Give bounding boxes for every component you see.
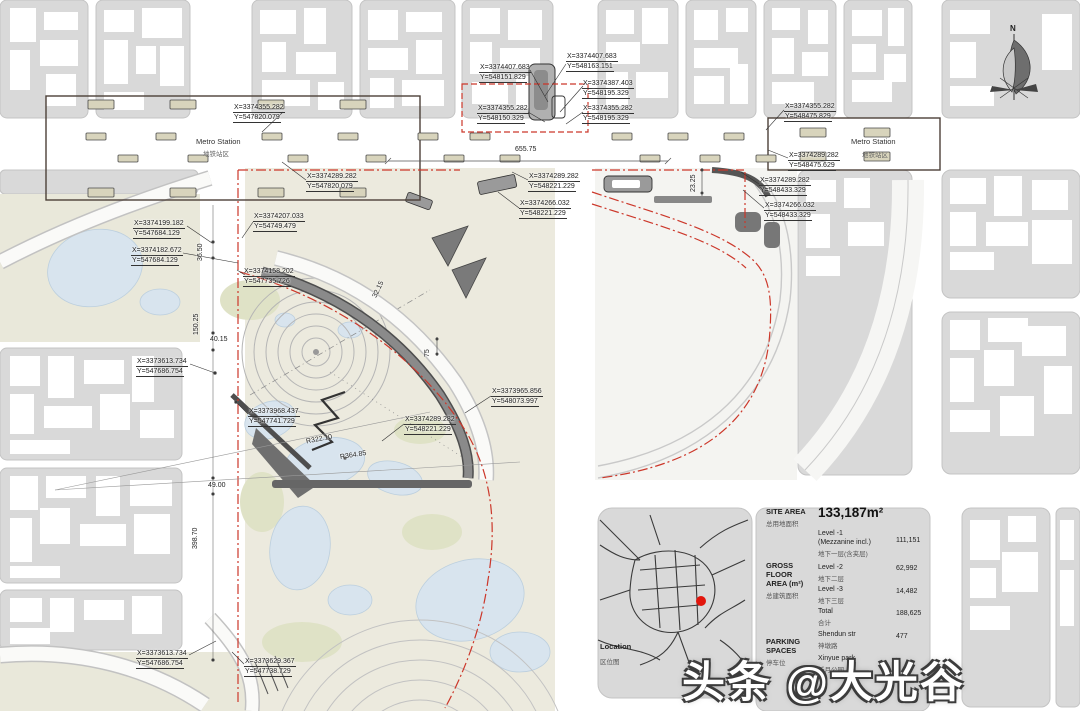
coord-label: X=3374407.683Y=548163.151 (566, 52, 618, 72)
metro-station-label-left: Metro Station (196, 137, 241, 146)
coord-label: X=3374289.282Y=548433.329 (759, 176, 811, 196)
coord-label: X=3374355.282Y=547820.079 (233, 103, 285, 123)
coord-label: X=3374207.033Y=54749.479 (253, 212, 305, 232)
coord-label: X=3374289.282Y=548475.629 (788, 151, 840, 171)
gfa-level1: Level -1 (818, 530, 843, 537)
coord-label: X=3373613.734Y=547686.754 (136, 649, 188, 669)
gfa-level2-value: 62,992 (896, 565, 917, 572)
gfa-level3: Level -3 (818, 586, 843, 593)
coord-label: X=3374266.032Y=548221.229 (519, 199, 571, 219)
coord-label: X=3374199.182Y=547684.129 (133, 219, 185, 239)
coord-label: X=3374387.403Y=548195.329 (582, 79, 634, 99)
dimension-label: 398.70 (192, 528, 199, 549)
coord-label: X=3374182.672Y=547684.129 (131, 246, 183, 266)
base-map (0, 0, 1080, 711)
gfa-total-value: 188,625 (896, 610, 921, 617)
site-area-label: SITE AREA (766, 508, 806, 517)
dimension-label: 150.25 (193, 314, 200, 335)
gfa-level1-zh: 地下一层(含夹层) (818, 548, 868, 558)
watermark: 头条 @大光谷 (682, 648, 965, 710)
metro-station-label-right-zh: 地铁站区 (862, 149, 888, 159)
dimension-label: 75 (424, 349, 431, 357)
gfa-total: Total (818, 608, 833, 615)
gfa-label-3: AREA (m²) (766, 580, 803, 589)
coord-label: X=3374289.282Y=548221.229 (404, 415, 456, 435)
site-plan-drawing: X=3374407.683Y=548163.151 X=3374407.683Y… (0, 0, 1080, 711)
coord-label: X=3373629.367Y=547738.729 (244, 657, 296, 677)
gfa-level1-note: (Mezzanine incl.) (818, 539, 871, 546)
coord-label: X=3374407.683Y=548151.829 (479, 63, 531, 83)
parking-shendun: Shendun str (818, 631, 856, 638)
gfa-level2: Level -2 (818, 564, 843, 571)
coord-label: X=3373965.856Y=548073.997 (491, 387, 543, 407)
coord-label: X=3374355.282Y=548475.829 (784, 102, 836, 122)
metro-station-label-left-zh: 地铁站区 (203, 148, 229, 158)
site-marker-dot (696, 596, 706, 606)
gfa-level3-zh: 地下三层 (818, 595, 844, 605)
gfa-level3-value: 14,482 (896, 588, 917, 595)
parking-shendun-value: 477 (896, 633, 908, 640)
coord-label: X=3373968.437Y=547741.729 (248, 407, 300, 427)
dimension-label: 655.75 (515, 146, 536, 153)
dimension-label: 49.00 (208, 482, 226, 489)
site-area-value: 133,187m² (818, 505, 883, 520)
gfa-level2-zh: 地下二层 (818, 573, 844, 583)
north-label: N (1010, 24, 1016, 33)
dimension-label: 40.15 (210, 336, 228, 343)
gfa-label-zh: 总建筑面积 (766, 590, 799, 600)
inset-title-zh: 区位图 (600, 656, 620, 666)
coord-label: X=3374158.202Y=547735.726 (243, 267, 295, 287)
coord-label: X=3374289.282Y=548221.229 (528, 172, 580, 192)
gfa-total-zh: 合计 (818, 617, 831, 627)
site-area-label-zh: 总用地面积 (766, 518, 799, 528)
dimension-label: 23.25 (690, 174, 697, 192)
gfa-level1-value: 111,151 (896, 537, 920, 544)
coord-label: X=3374355.282Y=548150.329 (477, 104, 529, 124)
coord-label: X=3373613.734Y=547686.754 (136, 357, 188, 377)
coord-label: X=3374289.282Y=547820.079 (306, 172, 358, 192)
dimension-label: 36.50 (197, 243, 204, 261)
metro-station-label-right: Metro Station (851, 137, 896, 146)
coord-label: X=3374266.032Y=548433.329 (764, 201, 816, 221)
coord-label: X=3374355.282Y=548195.329 (582, 104, 634, 124)
inset-title: Location (600, 643, 631, 652)
